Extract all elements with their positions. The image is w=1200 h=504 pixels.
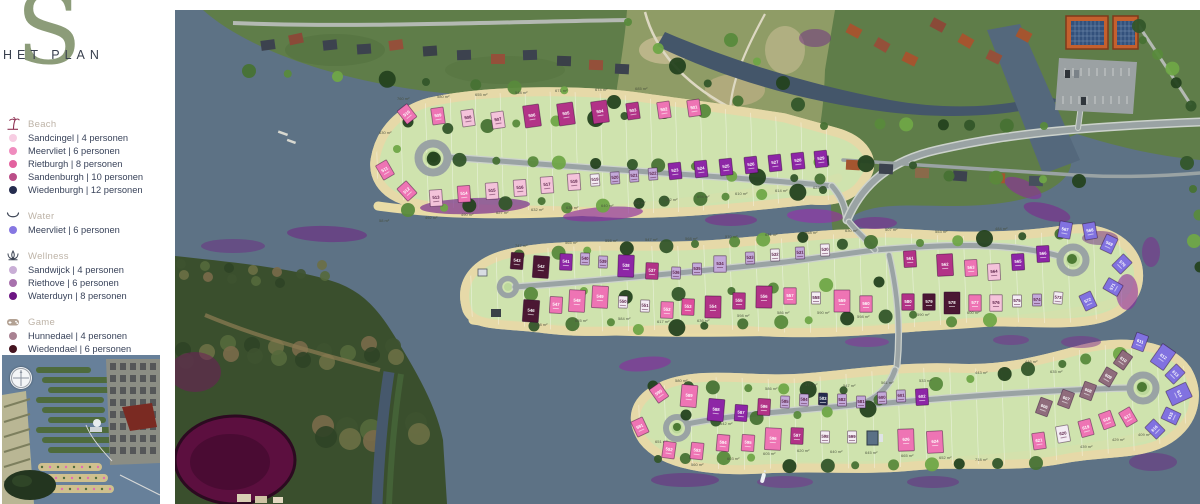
legend-item-label: Riethove | 6 personen [28,278,119,288]
lot-number: 554 [709,304,717,309]
legend-item-label: Meervliet | 6 personen [28,225,120,235]
lot-marker[interactable]: 567 [1057,221,1072,239]
lot-marker[interactable]: 542 [532,255,549,278]
area-label: 747 m² [515,243,528,248]
area-label: 58 m² [379,218,390,223]
lot-marker[interactable]: 593 [690,442,704,460]
lot-marker[interactable]: 547 [549,296,562,313]
area-label: 570 m² [725,234,738,239]
lot-marker[interactable]: 587 [734,404,748,421]
lot-marker[interactable]: 554 [705,296,721,318]
lot-marker[interactable]: 535 [693,263,702,275]
lot-marker[interactable]: 524 [694,160,708,178]
area-label: 409 m² [1138,432,1151,437]
area-label: 610 m² [735,191,748,196]
area-label: 586 m² [765,386,778,391]
area-label: 558 m² [805,230,818,235]
lot-number: 530 [821,247,829,252]
lot-marker[interactable]: 537 [645,263,658,280]
lot-number: 529 [817,155,825,161]
lot-marker[interactable]: 564 [987,263,1000,280]
area-label: 598 m² [857,314,870,319]
lot-marker[interactable]: 507 [491,111,506,129]
area-label: 482 m² [665,197,678,202]
area-label: 630 m² [845,228,858,233]
area-label: 614 m² [775,188,788,193]
legend-item: Wiedenburgh | 12 personen [4,183,175,196]
sidebar: S HET PLAN BeachSandcingel | 4 personenM… [0,0,175,504]
lot-number: 578 [948,300,956,305]
lot-marker[interactable]: 595 [741,434,755,451]
lot-number: 551 [641,303,649,308]
legend-color-dot [9,292,17,300]
lot-number: 508 [464,114,472,120]
lot-marker[interactable]: 516 [513,179,527,196]
lot-number: 579 [925,299,933,304]
legend-section-water: WaterMeervliet | 6 personen [4,209,175,236]
lot-number: 576 [992,300,1000,305]
area-label: 605 m² [763,451,776,456]
lot-marker[interactable]: 556 [756,286,772,308]
lot-marker[interactable]: 551 [640,300,649,312]
lot-number: 565 [1014,259,1022,264]
area-label: 718 m² [975,457,988,462]
lot-number: 626 [902,437,910,442]
lot-number: 527 [771,159,779,165]
area-label: 694 m² [697,194,710,199]
lot-number: 524 [697,165,705,171]
lot-marker[interactable]: 519 [590,174,600,187]
area-label: 560 m² [691,462,704,467]
lot-number: 546 [527,308,535,314]
lot-marker[interactable]: 588 [707,398,725,421]
lot-marker[interactable]: 504 [591,100,610,124]
lot-number: 516 [516,185,524,191]
lot-marker[interactable]: 534 [714,256,727,273]
lot-marker[interactable]: 557 [784,288,797,305]
lot-number: 564 [990,269,998,274]
area-label: 652 m² [939,455,952,460]
lot-marker[interactable]: 539 [598,256,607,268]
lot-number: 531 [796,250,804,255]
area-label: 547 m² [843,383,856,388]
area-label: 617 m² [657,319,670,324]
legend-item-label: Sandwijck | 4 personen [28,265,124,275]
lot-number: 521 [630,173,638,179]
area-label: 645 m² [865,450,878,455]
lot-marker[interactable]: 624 [926,431,943,454]
lot-marker[interactable]: 501 [687,99,702,117]
legend-item-label: Rietburgh | 8 personen [28,159,122,169]
legend-item-label: Wiedenburgh | 12 personen [28,185,143,195]
area-label: 640 m² [830,449,843,454]
lot-marker[interactable]: 525 [719,158,733,176]
lot-marker[interactable]: 508 [461,109,476,127]
lot-marker[interactable]: 562 [936,254,953,277]
lot-number: 560 [862,301,870,306]
lot-marker[interactable]: 574 [1033,294,1042,306]
lot-number: 525 [722,163,730,169]
area-label: 439 m² [1080,444,1093,449]
lot-number: 558 [812,295,820,300]
lot-marker[interactable]: 584 [799,394,808,406]
lot-marker[interactable]: 581 [857,396,866,408]
area-label: 636 m² [697,318,710,323]
lot-marker[interactable]: 600 [877,392,886,404]
area-label: 548 m² [515,90,528,95]
area-label: 580 m² [437,94,450,99]
lot-marker[interactable]: 552 [660,302,673,319]
lot-marker[interactable]: 565 [1011,253,1024,270]
legend-item-label: Sandcingel | 4 personen [28,133,128,143]
area-label: 477 m² [805,382,818,387]
lot-marker[interactable]: 598 [820,431,829,443]
legend-section-label: Game [28,317,55,328]
lot-marker[interactable]: 594 [716,434,730,452]
legend-item-label: Meervliet | 6 personen [28,146,120,156]
lot-marker[interactable]: 505 [557,102,576,126]
lot-marker[interactable]: 553 [681,299,694,316]
area-label: 446 m² [1025,359,1038,364]
area-label: 635 m² [1050,369,1063,374]
lot-number: 584 [800,397,808,402]
lot-marker[interactable]: 523 [668,162,682,180]
wellness-icon [4,249,21,263]
lot-marker[interactable]: 528 [791,152,805,170]
legend-section-wellness: WellnessSandwijck | 4 personenRiethove |… [4,249,175,302]
lot-number: 501 [690,104,698,110]
lot-marker[interactable]: 602 [915,388,928,405]
legend-item: Riethove | 6 personen [4,276,175,289]
legend: BeachSandcingel | 4 personenMeervliet | … [0,117,175,355]
area-label: 627 m² [496,210,509,215]
lot-marker[interactable]: 577 [969,295,982,312]
legend-item-label: Hunnedael | 4 personen [28,331,127,341]
lot-number: 596 [769,436,777,441]
area-label: 533 m² [919,378,932,383]
lot-number: 580 [904,299,912,304]
water-icon [4,209,21,223]
lot-marker[interactable]: 540 [580,253,589,265]
lot-number: 601 [897,393,905,398]
lot-marker[interactable]: 506 [523,104,542,128]
lot-number: 518 [570,179,578,185]
lot-marker[interactable]: 517 [540,176,554,193]
lot-number: 535 [693,266,701,271]
legend-item: Hunnedael | 4 personen [4,329,175,342]
lot-number: 505 [562,110,570,116]
lot-marker[interactable]: 596 [764,428,781,451]
lot-marker[interactable]: 536 [671,267,680,279]
area-label: 655 m² [575,318,588,323]
legend-item: Waterduyn | 8 personen [4,289,175,302]
lot-number: 593 [693,447,701,453]
area-label: 462 m² [633,200,646,205]
lot-marker[interactable]: 597 [790,428,803,445]
area-label: 561 m² [881,380,894,385]
area-label: 631 m² [765,232,778,237]
lot-marker[interactable]: 530 [820,244,829,256]
lot-number: 523 [671,167,679,173]
legend-color-dot [9,134,17,142]
legend-color-dot [9,345,17,353]
logo-s-glyph: S [16,0,82,78]
lot-number: 547 [552,302,560,307]
lot-number: 597 [793,433,801,438]
lot-number: 542 [537,264,545,270]
area-label: 584 m² [618,316,631,321]
area-label: 636 m² [566,205,579,210]
legend-item: Rietburgh | 8 personen [4,157,175,170]
compass-icon[interactable] [10,367,32,389]
area-label: 580 m² [675,378,688,383]
area-label: 674 m² [595,87,608,92]
area-label: 630 m² [379,130,392,135]
legend-item: Sandcingel | 4 personen [4,131,175,144]
legend-color-dot [9,186,17,194]
lot-number: 509 [434,112,442,118]
legend-item: Wiedendael | 6 personen [4,342,175,355]
lot-number: 543 [513,258,521,264]
area-label: 565 m² [565,240,578,245]
lot-number: 575 [1013,298,1021,303]
lot-marker[interactable]: 620 [1055,425,1070,443]
area-label: 490 m² [461,212,474,217]
legend-item: Sandenburgh | 10 personen [4,170,175,183]
lot-marker[interactable]: 548 [568,290,585,313]
lot-marker[interactable]: 563 [964,259,977,276]
lot-marker[interactable]: 503 [626,102,641,120]
lot-marker[interactable]: 585 [780,396,789,408]
legend-section-beach: BeachSandcingel | 4 personenMeervliet | … [4,117,175,196]
area-label: 665 m² [901,453,914,458]
area-label: 553 m² [935,229,948,234]
lot-marker[interactable]: 514 [457,185,471,202]
lot-number: 602 [918,394,926,399]
lot-number: 533 [746,255,754,260]
lot-marker[interactable]: 580 [902,294,915,311]
lot-number: 548 [573,298,581,303]
lot-marker[interactable]: 575 [1013,295,1022,307]
area-label: 558 m² [605,238,618,243]
game-icon [4,315,21,329]
lot-number: 586 [760,404,768,409]
lot-marker[interactable]: 621 [1032,432,1047,450]
lot-marker[interactable]: 559 [834,290,850,312]
legend-section-label: Beach [28,119,56,130]
logo-text: HET PLAN [3,48,104,62]
lot-number: 503 [629,107,637,113]
lot-marker[interactable]: 543 [510,252,524,269]
area-label: 484 m² [995,226,1008,231]
lot-number: 621 [1035,437,1043,443]
lot-number: 540 [581,256,589,261]
lot-number: 522 [649,171,657,177]
area-label: 492 m² [425,215,438,220]
lot-marker[interactable]: 513 [429,189,443,206]
lot-marker[interactable]: 555 [733,293,746,310]
lot-number: 507 [494,116,502,122]
lot-marker[interactable]: 601 [896,390,905,402]
legend-item-label: Sandenburgh | 10 personen [28,172,143,182]
lot-number: 559 [838,298,846,303]
area-label: 623 m² [813,185,826,190]
lot-marker[interactable]: 558 [812,292,821,304]
legend-item-label: Wiedendael | 6 personen [28,344,131,354]
legend-item: Sandwijck | 4 personen [4,263,175,276]
lot-number: 519 [591,177,599,183]
lot-marker[interactable]: 599 [848,431,857,443]
lot-number: 588 [712,406,720,412]
lot-number: 583 [819,396,827,401]
area-label: 507 m² [885,227,898,232]
legend-color-dot [9,173,17,181]
lot-marker[interactable]: 502 [657,101,672,119]
legend-color-dot [9,226,17,234]
lot-marker[interactable]: 522 [648,168,658,181]
lot-marker[interactable]: 546 [522,299,539,322]
lot-number: 587 [737,410,745,416]
lot-number: 502 [660,106,668,112]
area-label: 640 m² [601,203,614,208]
lot-marker[interactable]: 566 [1036,245,1049,262]
lot-marker[interactable]: 560 [860,296,873,313]
lot-marker[interactable]: 576 [990,295,1003,312]
area-label: 590 m² [917,312,930,317]
lot-marker[interactable]: 526 [744,156,758,174]
lot-number: 550 [619,299,627,304]
lot-number: 581 [857,399,865,404]
lot-number: 563 [967,265,975,270]
lot-number: 566 [1039,251,1047,256]
site-plan-map[interactable]: 760 m²580 m²655 m²548 m²671 m²674 m²685 … [175,10,1200,504]
area-label: 603 m² [727,456,740,461]
area-label: 443 m² [975,370,988,375]
lot-marker[interactable]: 550 [618,296,627,308]
lot-number: 553 [684,304,692,309]
lot-marker[interactable]: 573 [1053,292,1063,305]
lot-number: 624 [931,439,939,444]
area-label: 655 m² [475,92,488,97]
beach-icon [4,117,21,131]
lot-number: 538 [622,263,630,268]
legend-color-dot [9,266,17,274]
lot-number: 562 [941,262,949,267]
lot-number: 549 [596,294,604,299]
lot-marker[interactable]: 531 [795,247,804,259]
area-label: 547 m² [645,237,658,242]
lot-number: 594 [719,439,727,445]
brand-logo: S HET PLAN [0,8,175,104]
lot-number: 537 [648,268,656,273]
lot-number: 598 [821,434,829,439]
legend-color-dot [9,279,17,287]
lot-number: 504 [596,108,604,114]
lot-marker[interactable]: 527 [768,154,782,172]
area-label: 586 m² [777,310,790,315]
legend-section-label: Water [28,211,54,222]
lot-marker[interactable]: 592 [662,441,677,459]
legend-item-label: Waterduyn | 8 personen [28,291,127,301]
legend-section-game: GameHunnedael | 4 personenWiedendael | 6… [4,315,175,355]
lot-number: 585 [781,399,789,404]
lot-marker[interactable]: 520 [610,172,620,185]
lot-marker[interactable]: 568 [1082,222,1097,240]
lot-number: 515 [488,188,496,194]
lot-marker[interactable]: 579 [923,294,936,311]
lot-number: 573 [1054,294,1062,300]
lot-marker[interactable]: 515 [485,182,499,199]
area-label: 429 m² [1112,437,1125,442]
area-label: 568 m² [685,236,698,241]
lot-marker[interactable]: 538 [618,255,635,278]
lot-marker[interactable]: 518 [567,173,581,190]
lot-marker[interactable]: 586 [757,398,770,415]
legend-item: Meervliet | 6 personen [4,223,175,236]
area-label: 590 m² [817,310,830,315]
area-label: 632 m² [531,207,544,212]
lot-number: 506 [528,112,536,118]
lot-number: 555 [735,298,743,303]
lot-marker[interactable]: 521 [629,170,639,183]
lot-marker[interactable]: 509 [431,107,446,125]
lot-number: 528 [794,157,802,163]
lot-number: 541 [562,259,570,264]
legend-color-dot [9,147,17,155]
overview-minimap[interactable] [2,355,160,504]
legend-color-dot [9,160,17,168]
lot-number: 514 [460,191,468,197]
area-label: 598 m² [737,313,750,318]
lot-marker[interactable]: 561 [903,250,916,267]
lot-number: 526 [747,161,755,167]
lot-number: 534 [716,261,724,266]
lot-number: 592 [665,446,673,452]
lot-number: 539 [599,259,607,264]
lot-number: 595 [744,440,752,446]
lot-number: 574 [1033,297,1041,302]
lot-number: 577 [971,300,979,305]
area-label: 685 m² [635,86,648,91]
lot-number: 599 [848,434,856,439]
lot-marker[interactable]: 626 [898,429,915,452]
lot-marker[interactable]: 529 [814,150,828,168]
area-label: 671 m² [555,88,568,93]
legend-section-label: Wellness [28,251,69,262]
lot-marker[interactable]: 549 [591,286,608,309]
lot-number: 556 [760,294,768,299]
lot-number: 520 [611,175,619,181]
legend-item: Meervliet | 6 personen [4,144,175,157]
lot-number: 589 [685,392,693,398]
lot-marker[interactable]: 582 [838,394,847,406]
lot-marker[interactable]: 589 [680,384,698,407]
lot-number: 561 [906,256,914,261]
lot-marker[interactable]: 533 [745,252,754,264]
lot-marker[interactable]: 541 [559,254,572,271]
lot-marker[interactable]: 532 [770,249,779,261]
lot-marker[interactable]: 583 [818,393,827,405]
legend-color-dot [9,332,17,340]
lot-number: 536 [672,270,680,275]
area-label: 760 m² [397,96,410,101]
lot-number: 552 [663,307,671,312]
lot-number: 517 [543,182,551,188]
lot-number: 557 [786,293,794,298]
lot-marker[interactable]: 578 [944,292,960,314]
area-label: 620 m² [797,448,810,453]
lot-number: 600 [878,395,886,400]
